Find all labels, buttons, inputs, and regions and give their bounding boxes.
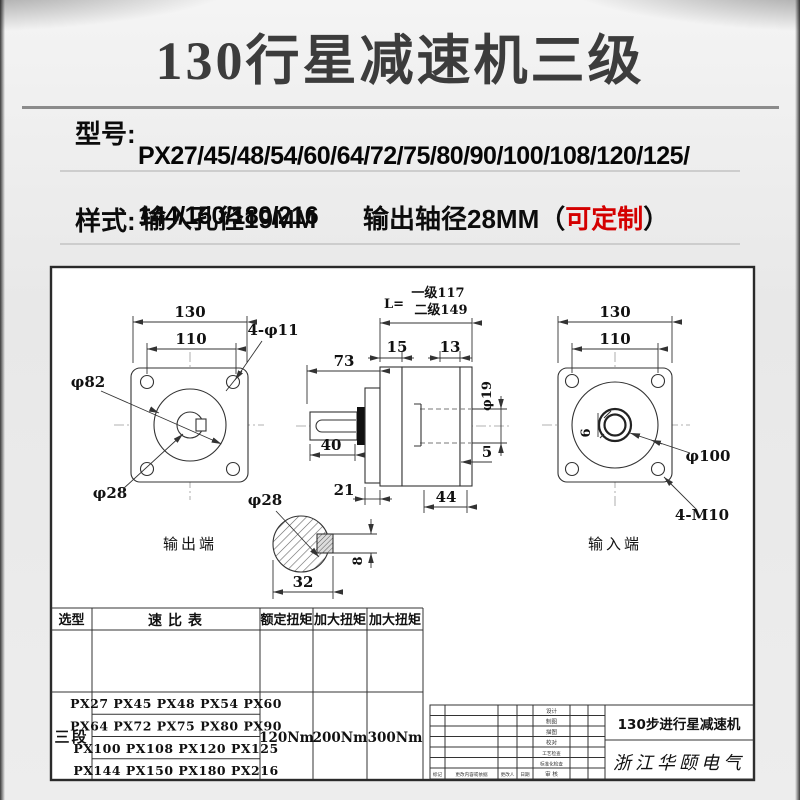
tb-rev-mark: 标记	[433, 771, 443, 778]
dim-6: 6	[579, 428, 594, 437]
tb-row-design: 设计	[546, 707, 558, 715]
dim-21: 21	[334, 481, 355, 499]
gearbox-body	[402, 367, 460, 486]
tb-row-trace: 描图	[546, 728, 558, 736]
dim-phi100: φ100	[686, 447, 731, 465]
keyway-notch	[196, 419, 206, 431]
rated-torque-value: 120Nm	[259, 730, 314, 746]
dim-15: 15	[387, 338, 408, 356]
dim-phi82: φ82	[71, 373, 105, 391]
ratio-row-3: PX100 PX108 PX120 PX125	[73, 741, 278, 756]
dim-73: 73	[334, 352, 355, 370]
dim-110-left: 110	[175, 330, 206, 348]
dim-110-right: 110	[599, 330, 630, 348]
dim-phi19: φ19	[480, 381, 495, 411]
product-detail-image: 130行星减速机三级 型号: PX27/45/48/54/60/64/72/75…	[0, 0, 800, 800]
dim-13: 13	[440, 338, 461, 356]
length-prefix: L=	[384, 297, 404, 312]
front-step	[365, 388, 380, 483]
input-end-caption: 输入端	[588, 535, 642, 553]
company-name: 浙江华颐电气	[613, 753, 745, 774]
col-header-selection: 选型	[58, 612, 84, 628]
dim-phi28-flange: φ28	[93, 484, 127, 502]
output-end-caption: 输出端	[163, 535, 217, 553]
col-header-boost-torque-1: 加大扭矩	[313, 612, 366, 628]
product-name: 130步进行星减速机	[618, 716, 741, 733]
col-header-boost-torque-2: 加大扭矩	[368, 612, 421, 628]
dim-40: 40	[321, 436, 342, 454]
dim-4-m10: 4-M10	[675, 506, 729, 524]
length-stage2: 二级149	[414, 302, 467, 318]
col-header-ratio-table: 速比表	[148, 612, 208, 629]
tb-row-draft: 制图	[546, 718, 558, 726]
input-bore-19	[605, 415, 626, 436]
dim-130-right: 130	[599, 303, 630, 321]
tb-rev-date: 日期	[520, 772, 530, 778]
ratio-row-4: PX144 PX150 PX180 PX216	[73, 763, 278, 778]
tb-rev-content: 更改内容或依据	[455, 771, 488, 778]
dim-phi28-shaft: φ28	[248, 491, 282, 509]
rear-flange-plate	[460, 367, 472, 486]
tb-row-process-check: 工艺检查	[542, 750, 561, 757]
length-stage1: 一级117	[411, 285, 464, 301]
boost-torque-value-2: 300Nm	[368, 730, 423, 746]
tb-rev-audit: 审 核	[545, 770, 558, 778]
shaft-seal	[357, 407, 365, 445]
col-header-rated-torque: 额定扭矩	[260, 612, 312, 628]
boost-torque-value-1: 200Nm	[313, 730, 368, 746]
ratio-row-1: PX27 PX45 PX48 PX54 PX60	[70, 696, 282, 711]
dim-4-phi11: 4-φ11	[247, 321, 298, 339]
dim-32: 32	[293, 573, 314, 591]
dim-8-key: 8	[351, 556, 366, 565]
dim-44: 44	[436, 488, 457, 506]
tb-rev-person: 更改人	[501, 771, 515, 778]
shaft-key	[317, 534, 333, 553]
dim-130-left: 130	[174, 303, 205, 321]
front-flange-plate	[380, 367, 402, 486]
ratio-row-2: PX64 PX72 PX75 PX80 PX90	[70, 719, 282, 734]
technical-drawing: 130 110 4-φ11 φ82 φ28 输出端 φ28 8	[0, 0, 800, 800]
tb-row-check: 校对	[546, 739, 558, 747]
dim-5: 5	[482, 443, 492, 461]
tb-row-standard-check: 标准化检查	[540, 761, 563, 768]
